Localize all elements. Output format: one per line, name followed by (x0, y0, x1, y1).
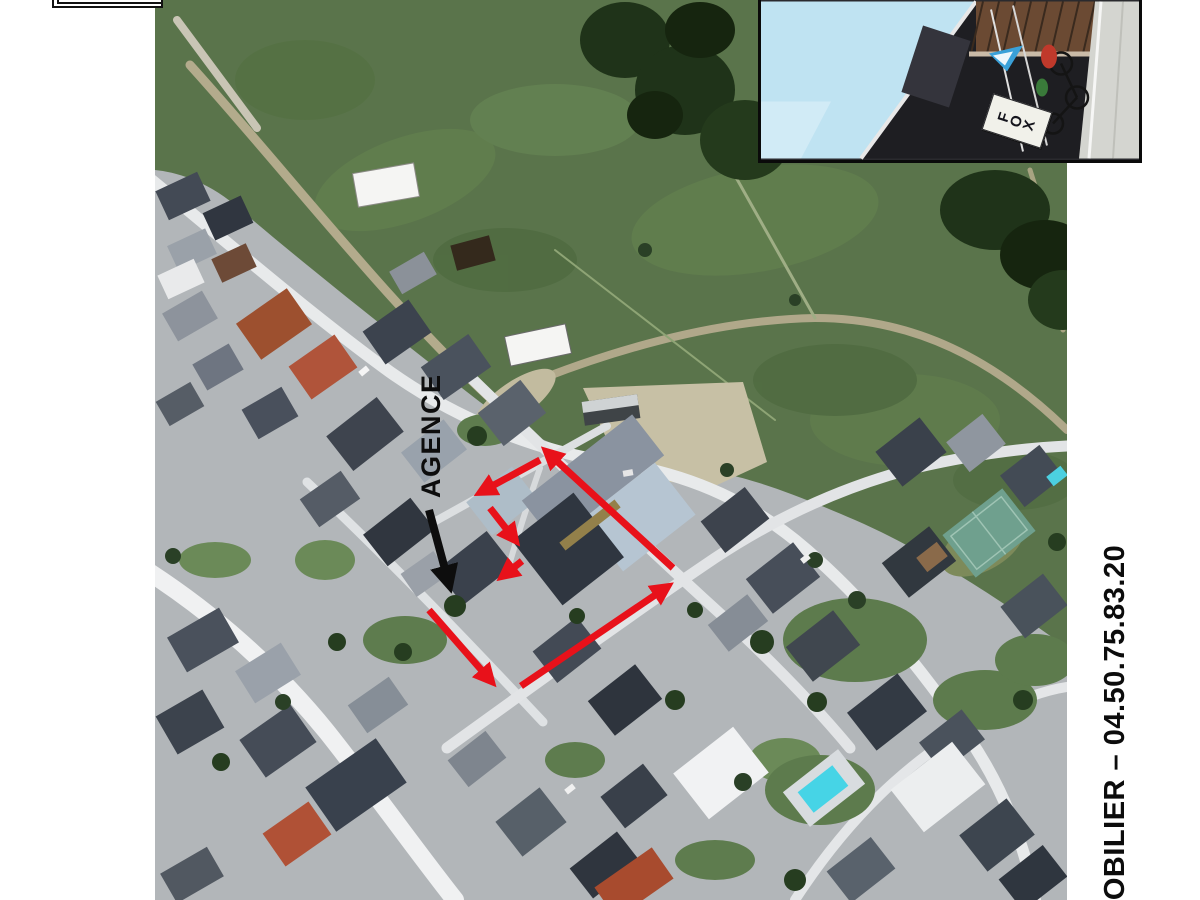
cutoff-textbox-inner-border (57, 0, 161, 4)
inset-photo: F O X (758, 0, 1142, 163)
flyer-page: AGENCE (0, 0, 1200, 900)
inset-photo-art (761, 0, 1139, 160)
fox-sign-letter: X (1021, 118, 1038, 132)
contact-phone-text: IMMOBILIER – 04.50.75.83.20 (1099, 478, 1135, 900)
cutoff-textbox (52, 0, 163, 8)
agence-label: AGENCE (416, 366, 452, 498)
